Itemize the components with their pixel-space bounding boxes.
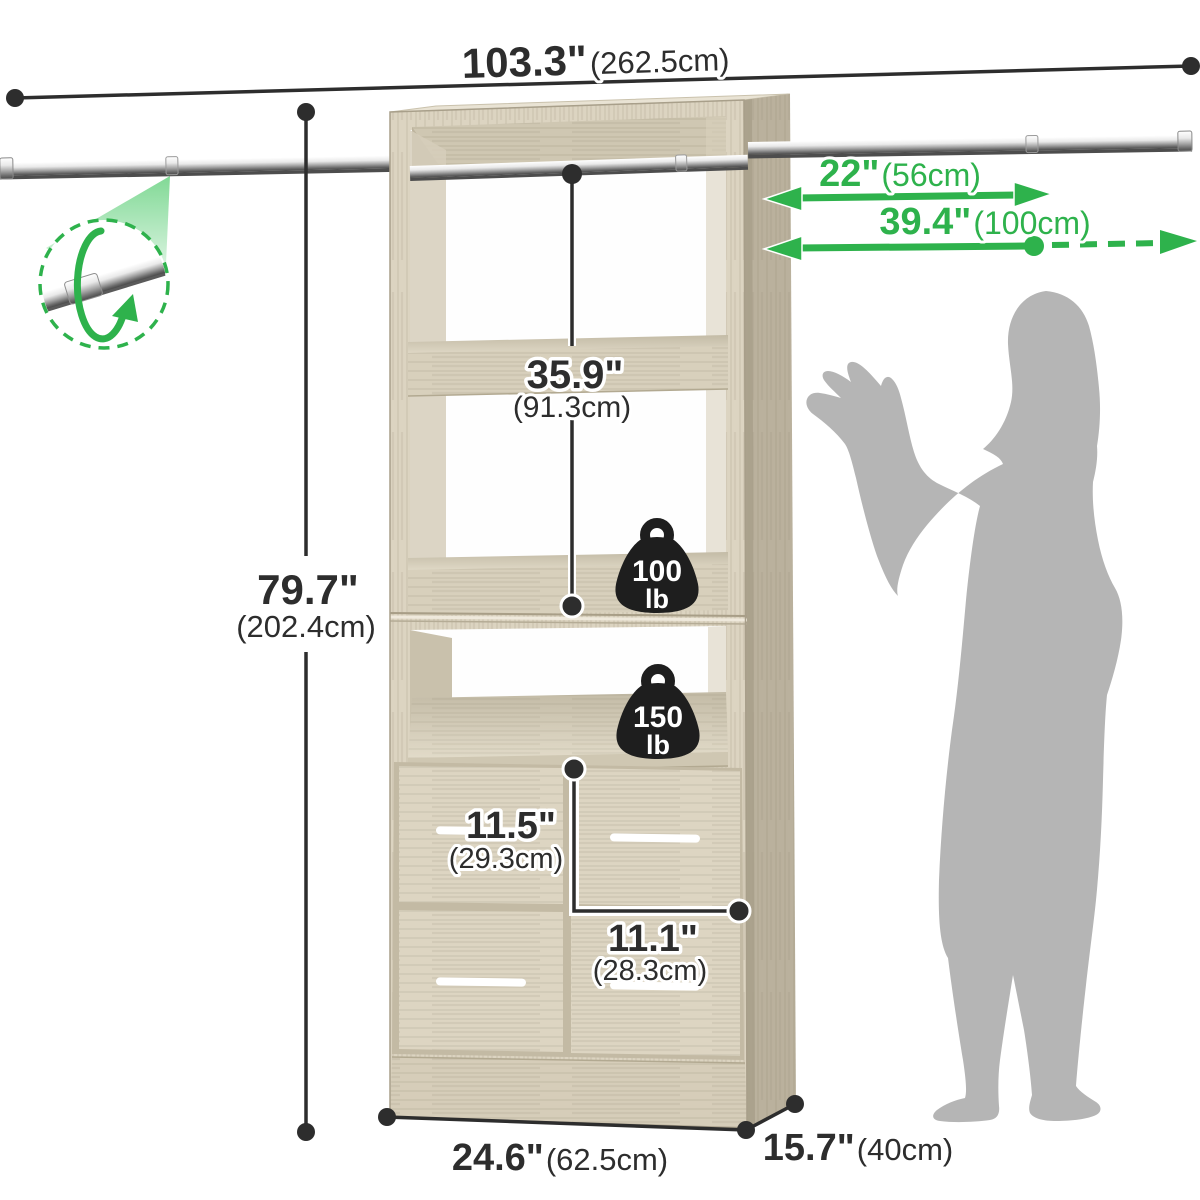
rod-extended-cm: (100cm) xyxy=(973,205,1090,241)
upper-capacity-unit: lb xyxy=(645,584,669,614)
height-cm: (202.4cm) xyxy=(236,609,376,644)
rod-retracted-cm: (56cm) xyxy=(881,157,981,193)
left-hanging-rod xyxy=(0,150,410,179)
dim-height: 79.7" (202.4cm) xyxy=(236,103,376,1141)
lower-capacity-unit: lb xyxy=(646,730,670,760)
tower-depth-in: 15.7" xyxy=(763,1127,855,1169)
tower-width-cm: (62.5cm) xyxy=(546,1142,668,1177)
tower-width-in: 24.6" xyxy=(452,1137,544,1179)
svg-text:39.4"(100cm): 39.4"(100cm) xyxy=(879,201,1090,243)
drawer-width-in: 11.1" xyxy=(608,918,698,960)
drawer-top-right xyxy=(571,768,740,907)
drawer-height-cm: (29.3cm) xyxy=(449,843,563,875)
drawer-bottom-left xyxy=(399,910,563,1052)
tower-depth-cm: (40cm) xyxy=(857,1132,953,1167)
hanging-height-cm: (91.3cm) xyxy=(513,391,631,424)
rod-detail-callout xyxy=(29,176,179,348)
dim-rod-extended: 39.4"(100cm) xyxy=(764,201,1197,261)
diagram-svg: 103.3"(262.5cm) 79.7" (202.4cm) 35.9" (9… xyxy=(0,0,1200,1200)
woman-silhouette xyxy=(806,291,1122,1122)
svg-text:22"(56cm): 22"(56cm) xyxy=(819,153,981,195)
rod-extended-in: 39.4" xyxy=(879,201,971,243)
right-hanging-rod xyxy=(748,131,1192,158)
drawer-width-cm: (28.3cm) xyxy=(593,955,707,987)
drawer-height-in: 11.5" xyxy=(466,805,556,847)
total-width-in: 103.3" xyxy=(461,36,587,87)
rod-retracted-in: 22" xyxy=(819,153,879,195)
drawer-handle xyxy=(436,977,526,986)
total-width-cm: (262.5cm) xyxy=(589,42,730,81)
product-dimension-diagram: 103.3"(262.5cm) 79.7" (202.4cm) 35.9" (9… xyxy=(0,0,1200,1200)
svg-text:24.6"(62.5cm): 24.6"(62.5cm) xyxy=(452,1137,668,1179)
svg-text:15.7"(40cm): 15.7"(40cm) xyxy=(763,1127,953,1169)
dim-total-width: 103.3"(262.5cm) xyxy=(6,32,1200,107)
drawer-handle xyxy=(610,833,700,842)
height-in: 79.7" xyxy=(257,566,359,613)
